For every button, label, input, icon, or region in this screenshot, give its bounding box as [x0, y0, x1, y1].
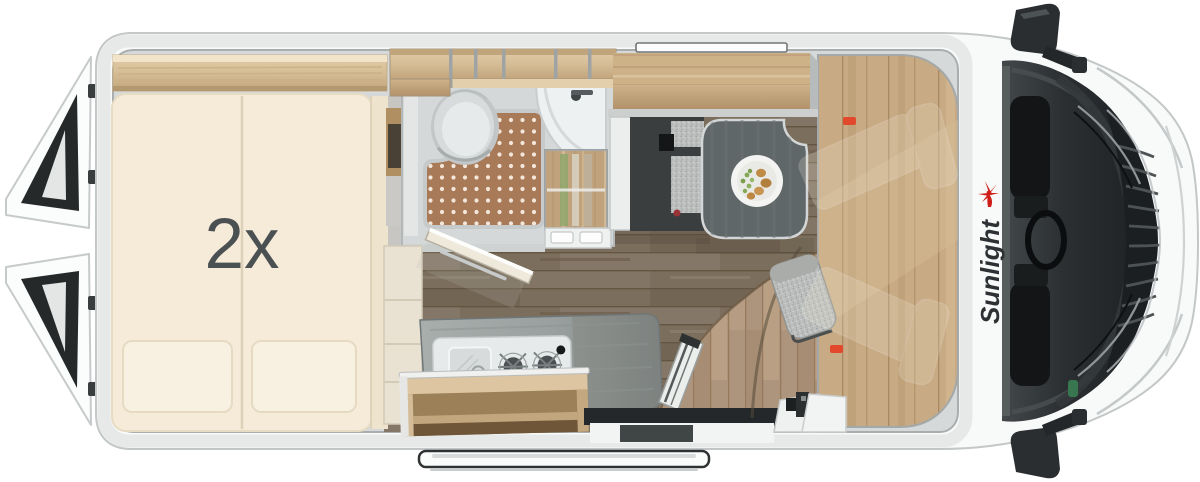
svg-text:Sunlight: Sunlight: [975, 219, 1005, 324]
svg-text:2x: 2x: [205, 205, 280, 284]
